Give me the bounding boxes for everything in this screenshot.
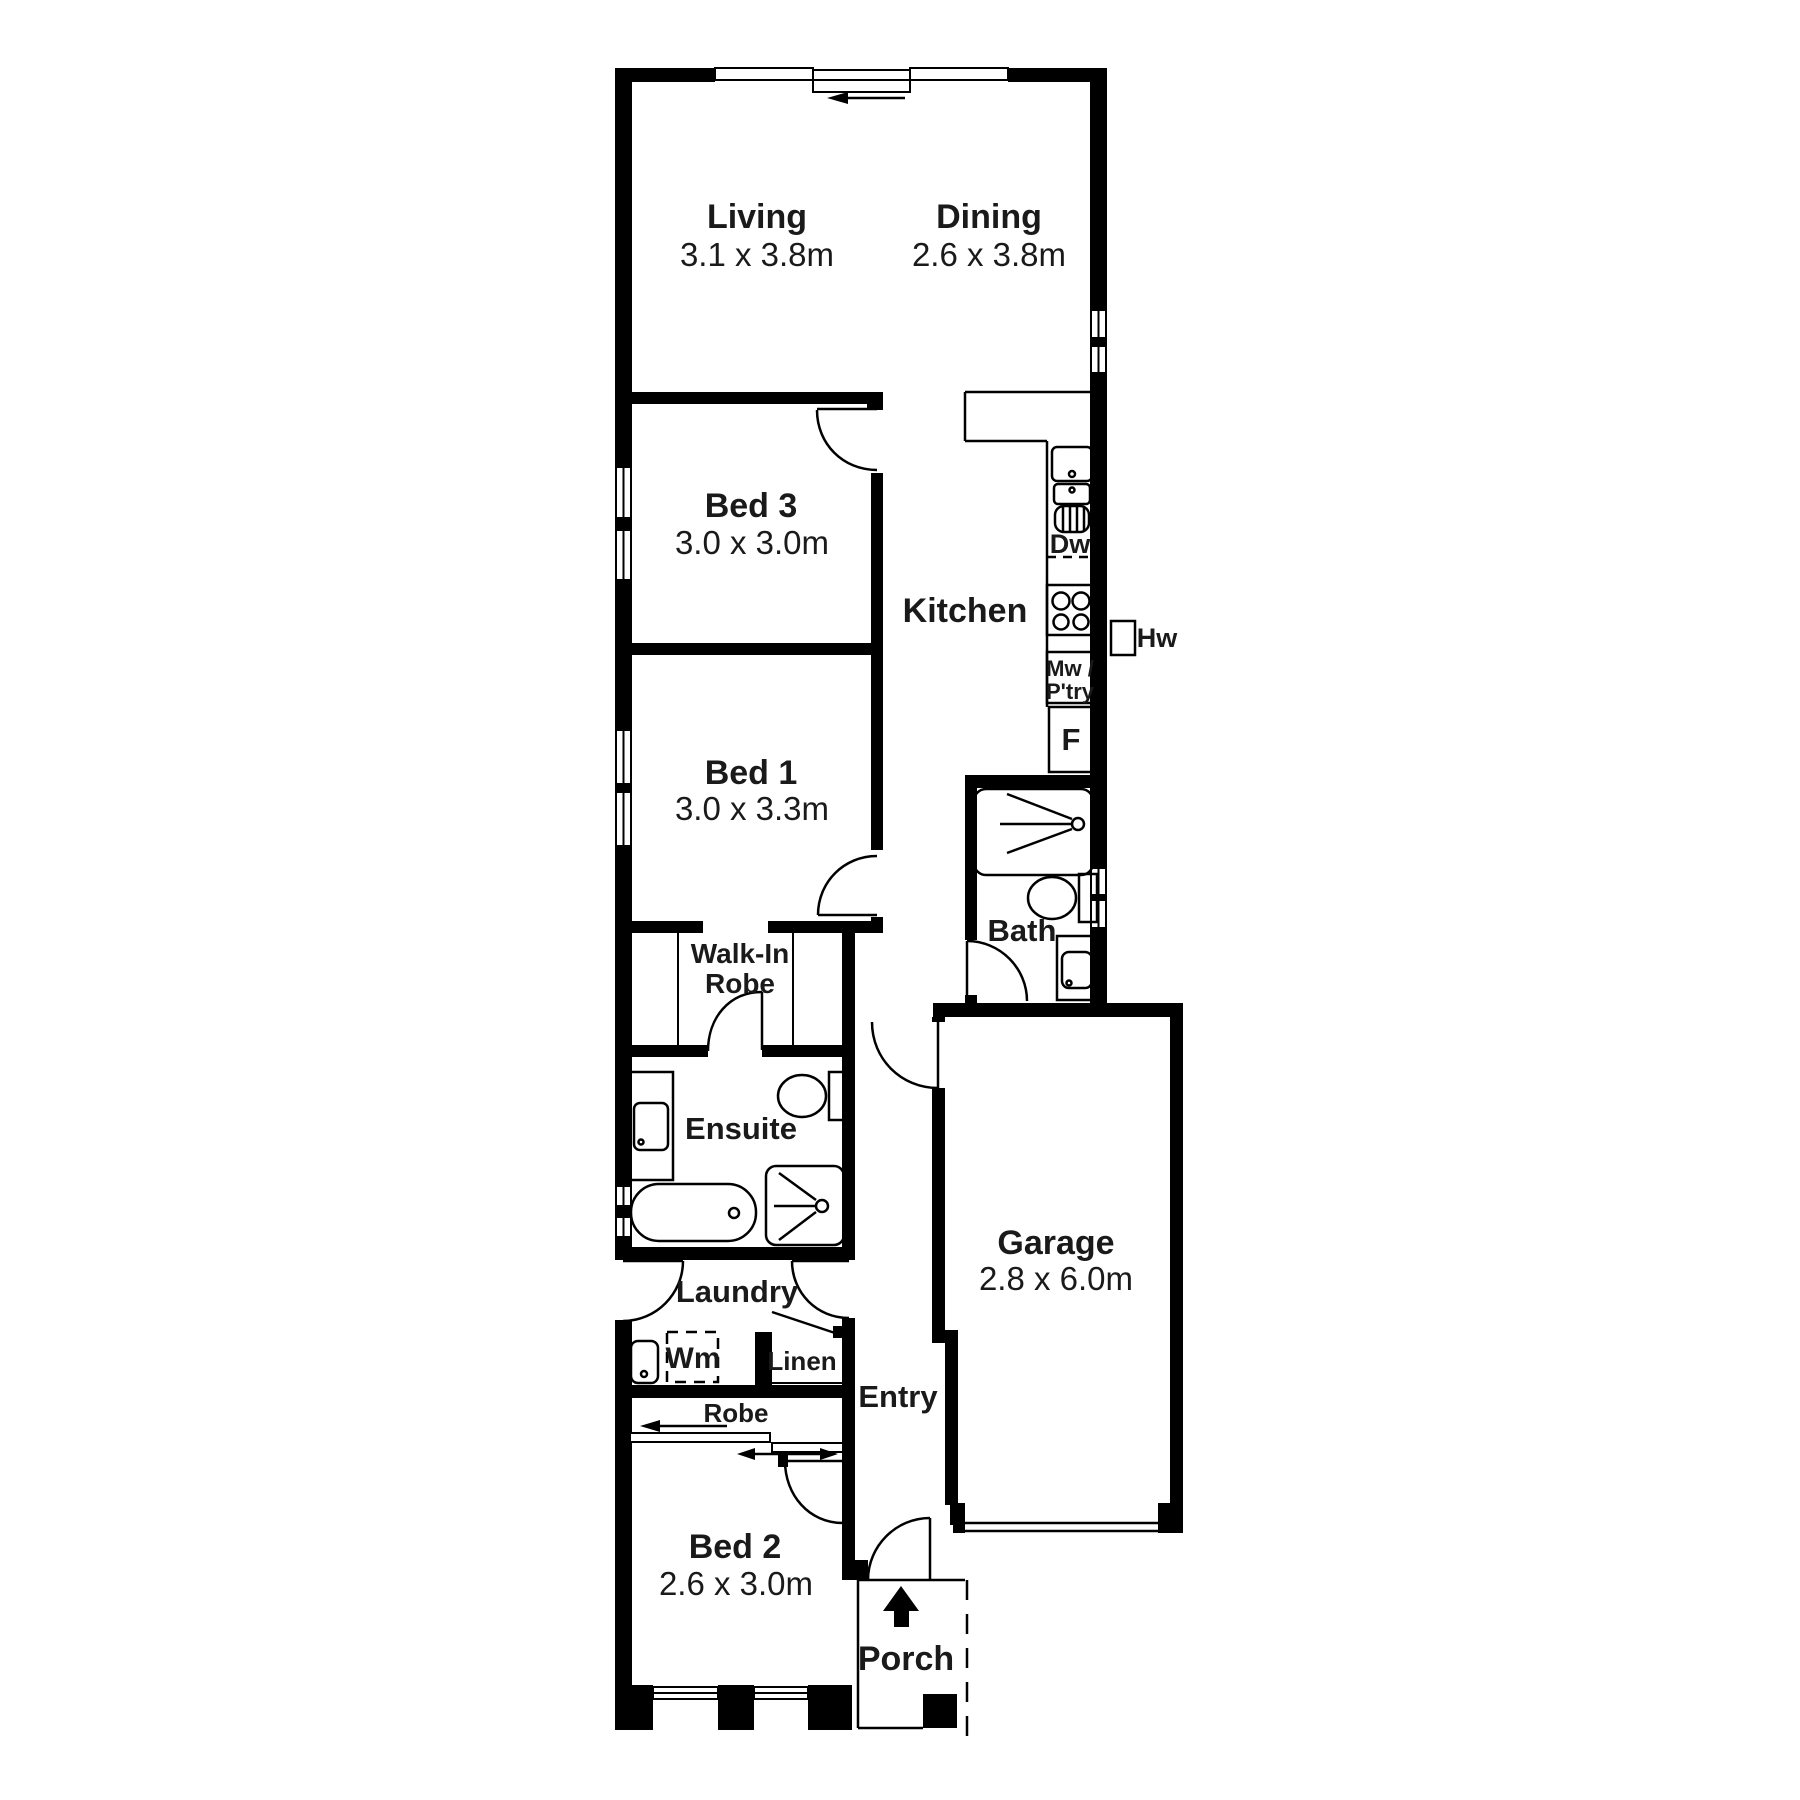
laundry-tub — [631, 1341, 658, 1383]
ensuite-vanity — [629, 1072, 673, 1180]
cooktop — [1047, 585, 1093, 635]
ensuite-shower — [766, 1166, 844, 1245]
label-dining-dims: 2.6 x 3.8m — [912, 236, 1066, 273]
hot-water-unit — [1111, 621, 1135, 655]
kitchen-fixtures — [965, 392, 1135, 772]
laundry-external-door — [623, 1261, 683, 1321]
kitchen-sink — [1052, 447, 1092, 532]
label-linen-label: Linen — [767, 1346, 836, 1376]
label-dw-label: Dw — [1050, 529, 1091, 559]
label-mw-label-1: Mw / — [1046, 656, 1094, 681]
label-dining-name: Dining — [936, 198, 1042, 236]
floor-plan-drawing: Living3.1 x 3.8mDining2.6 x 3.8mBed 33.0… — [0, 0, 1800, 1800]
garage-internal-door — [872, 1022, 938, 1088]
label-garage-dims: 2.8 x 6.0m — [979, 1260, 1133, 1297]
bath-fixtures — [974, 789, 1097, 1000]
entry-direction-arrow — [883, 1586, 919, 1627]
floor-plan-page: Living3.1 x 3.8mDining2.6 x 3.8mBed 33.0… — [0, 0, 1800, 1800]
label-f-label: F — [1062, 722, 1081, 757]
bed2-door — [785, 1461, 843, 1523]
laundry-hall-door — [792, 1261, 849, 1318]
label-bed1-dims: 3.0 x 3.3m — [675, 790, 829, 827]
bath-door — [967, 941, 1027, 1001]
ensuite-fixtures — [629, 1072, 847, 1245]
label-bed1-name: Bed 1 — [705, 754, 798, 792]
label-ensuite-name: Ensuite — [685, 1111, 797, 1146]
bed2-robe — [630, 1433, 843, 1452]
door-swings — [623, 409, 1027, 1580]
label-wir-line1: Walk-In — [691, 938, 790, 969]
bath-shower — [974, 789, 1093, 875]
label-garage-name: Garage — [997, 1224, 1114, 1262]
front-door — [868, 1518, 930, 1580]
label-living-dims: 3.1 x 3.8m — [680, 236, 834, 273]
label-robe-label: Robe — [704, 1398, 769, 1428]
label-hw-label: Hw — [1137, 623, 1178, 653]
label-bed2-dims: 2.6 x 3.0m — [659, 1565, 813, 1602]
bed3-door — [817, 409, 877, 470]
label-laundry-name: Laundry — [676, 1274, 799, 1309]
label-wm-label: Wm — [666, 1342, 721, 1375]
label-entry-name: Entry — [858, 1379, 938, 1414]
label-wir-line2: Robe — [705, 968, 775, 999]
bathtub — [631, 1184, 756, 1241]
walk-in-robe-door — [708, 992, 762, 1051]
sliding-door — [713, 68, 1010, 92]
label-kitchen-name: Kitchen — [903, 592, 1028, 630]
label-living-name: Living — [707, 198, 807, 236]
label-bed2-name: Bed 2 — [689, 1528, 782, 1566]
label-mw-label-2: P'try — [1046, 679, 1095, 704]
sliding-door-arrow — [827, 92, 905, 104]
garage-door — [965, 1523, 1158, 1531]
label-porch-name: Porch — [858, 1640, 954, 1678]
label-bed3-name: Bed 3 — [705, 487, 798, 525]
label-bed3-dims: 3.0 x 3.0m — [675, 524, 829, 561]
label-bath-name: Bath — [988, 913, 1057, 948]
bed1-door — [818, 856, 877, 915]
